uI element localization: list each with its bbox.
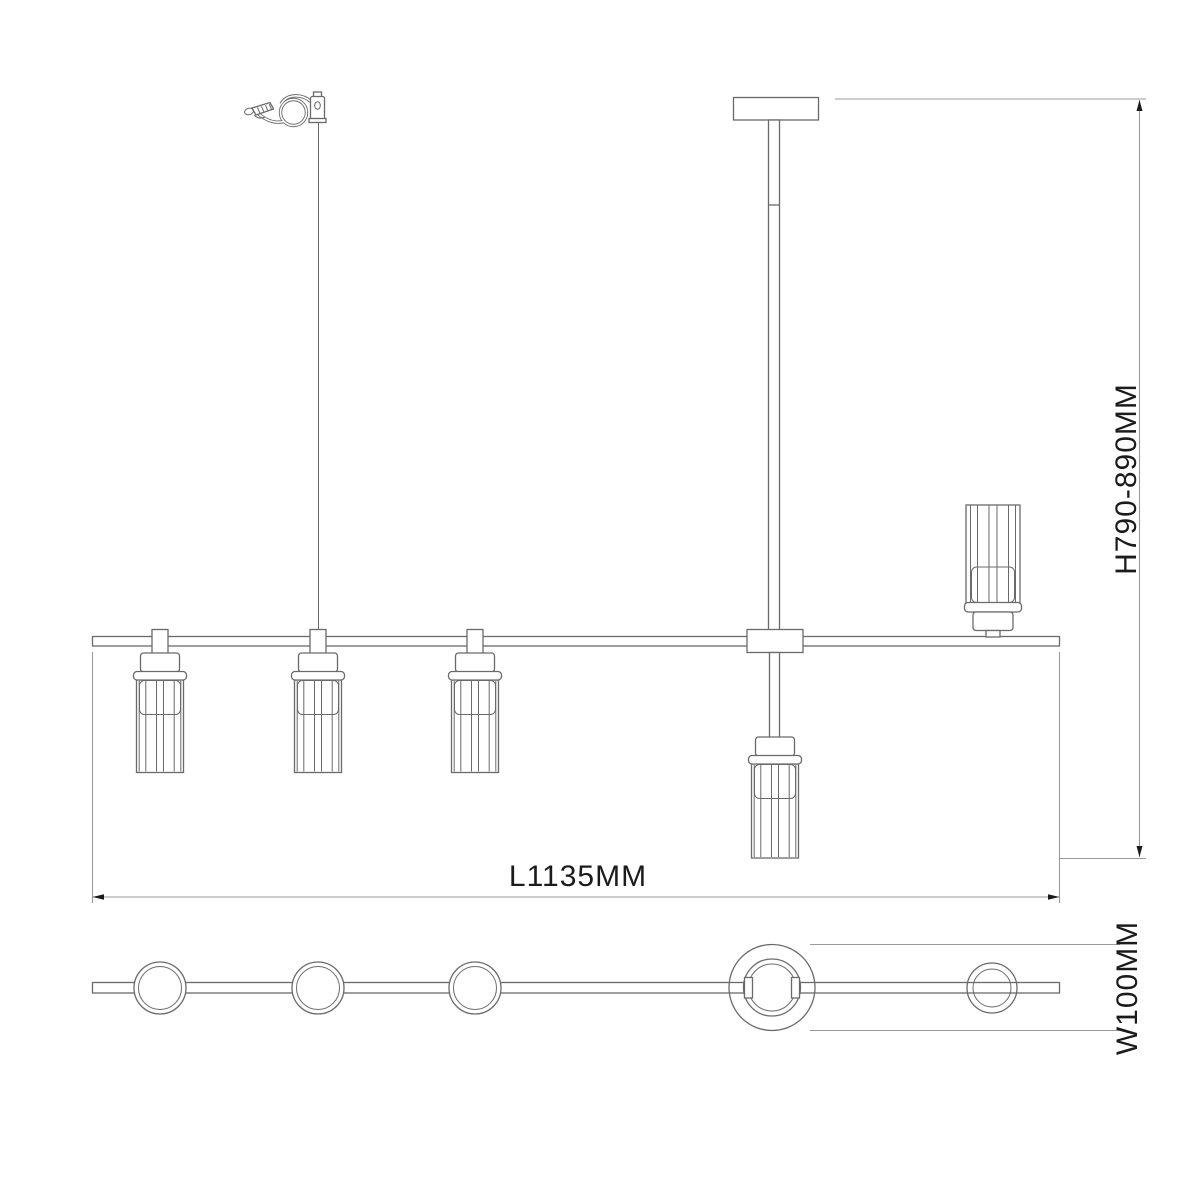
drop-rod (770, 653, 780, 738)
shade-circle-1 (134, 962, 186, 1014)
height-dimension (835, 99, 1146, 859)
front-view (93, 92, 1060, 858)
ceiling-canopy (734, 98, 819, 121)
gripper-base (309, 119, 326, 123)
horizontal-bar (93, 637, 1060, 647)
uplight-shade (965, 505, 1022, 637)
hanging-rod (769, 120, 780, 630)
shade-stem (986, 631, 1000, 638)
pendant-shade-2 (292, 630, 345, 773)
center-pendant-shade (749, 737, 802, 858)
shade-socket-cap (973, 612, 1013, 631)
connector-block (747, 630, 803, 653)
shade-rim (965, 603, 1022, 613)
shade-circle-3 (449, 962, 501, 1014)
bottom-view (93, 945, 1060, 1031)
arrow-right-icon (1048, 894, 1060, 900)
wire-gripper (244, 92, 326, 126)
height-dimension-label: H790-890MM (1112, 383, 1142, 575)
length-dimension-label: L1135MM (509, 862, 647, 892)
pendant-shade-1 (134, 630, 187, 773)
arrow-left-icon (93, 894, 105, 900)
width-dimension-label: W100MM (1113, 921, 1143, 1055)
bottom-view-bar (93, 983, 1060, 994)
mount-clip-left (745, 978, 753, 999)
pendant-shade-3 (449, 630, 502, 773)
technical-drawing-canvas: L1135MM H790-890MM W100MM (0, 0, 1200, 1200)
fixture-schematic (0, 0, 1200, 1200)
gripper-body (311, 97, 325, 120)
arrow-up-icon (1137, 100, 1143, 111)
shade-body (966, 505, 1020, 603)
shade-circle-2 (292, 962, 344, 1014)
mount-clip-right (792, 978, 800, 999)
arrow-down-icon (1137, 846, 1143, 857)
